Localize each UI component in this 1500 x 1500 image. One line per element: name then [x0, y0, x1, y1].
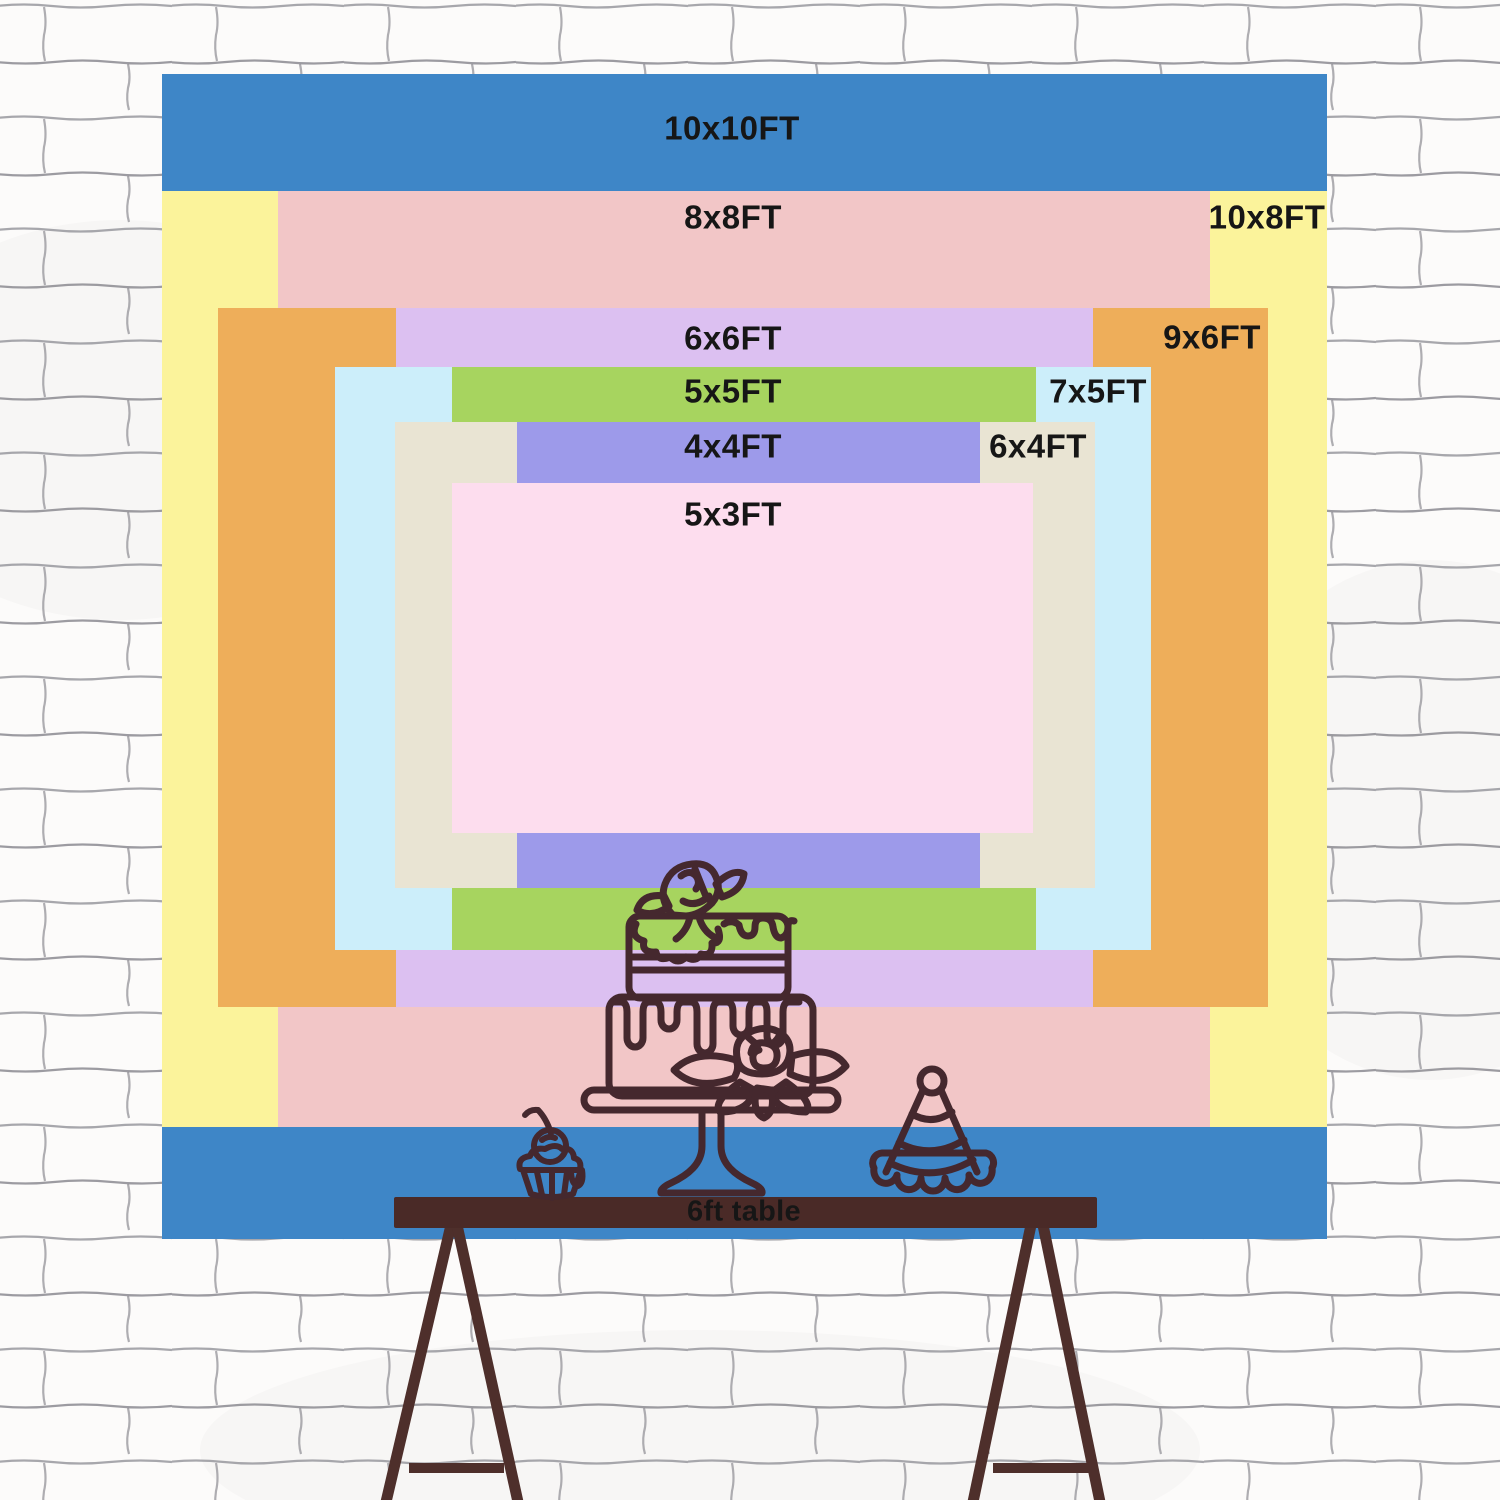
size-label-10x10: 10x10FT: [664, 112, 800, 145]
size-label-6x6: 6x6FT: [684, 322, 782, 355]
size-labels-layer: 10x10FT 8x8FT 10x8FT 6x6FT 9x6FT 5x5FT 7…: [0, 0, 1500, 1500]
size-label-6x4: 6x4FT: [989, 430, 1087, 463]
size-label-5x5: 5x5FT: [684, 375, 782, 408]
size-label-5x3: 5x3FT: [684, 498, 782, 531]
size-label-8x8: 8x8FT: [684, 201, 782, 234]
size-label-7x5: 7x5FT: [1049, 375, 1147, 408]
size-label-9x6: 9x6FT: [1163, 321, 1261, 354]
size-label-4x4: 4x4FT: [684, 430, 782, 463]
backdrop-size-chart: 10x10FT 8x8FT 10x8FT 6x6FT 9x6FT 5x5FT 7…: [0, 0, 1500, 1500]
table-size-label: 6ft table: [687, 1198, 801, 1227]
size-label-10x8: 10x8FT: [1209, 201, 1326, 234]
